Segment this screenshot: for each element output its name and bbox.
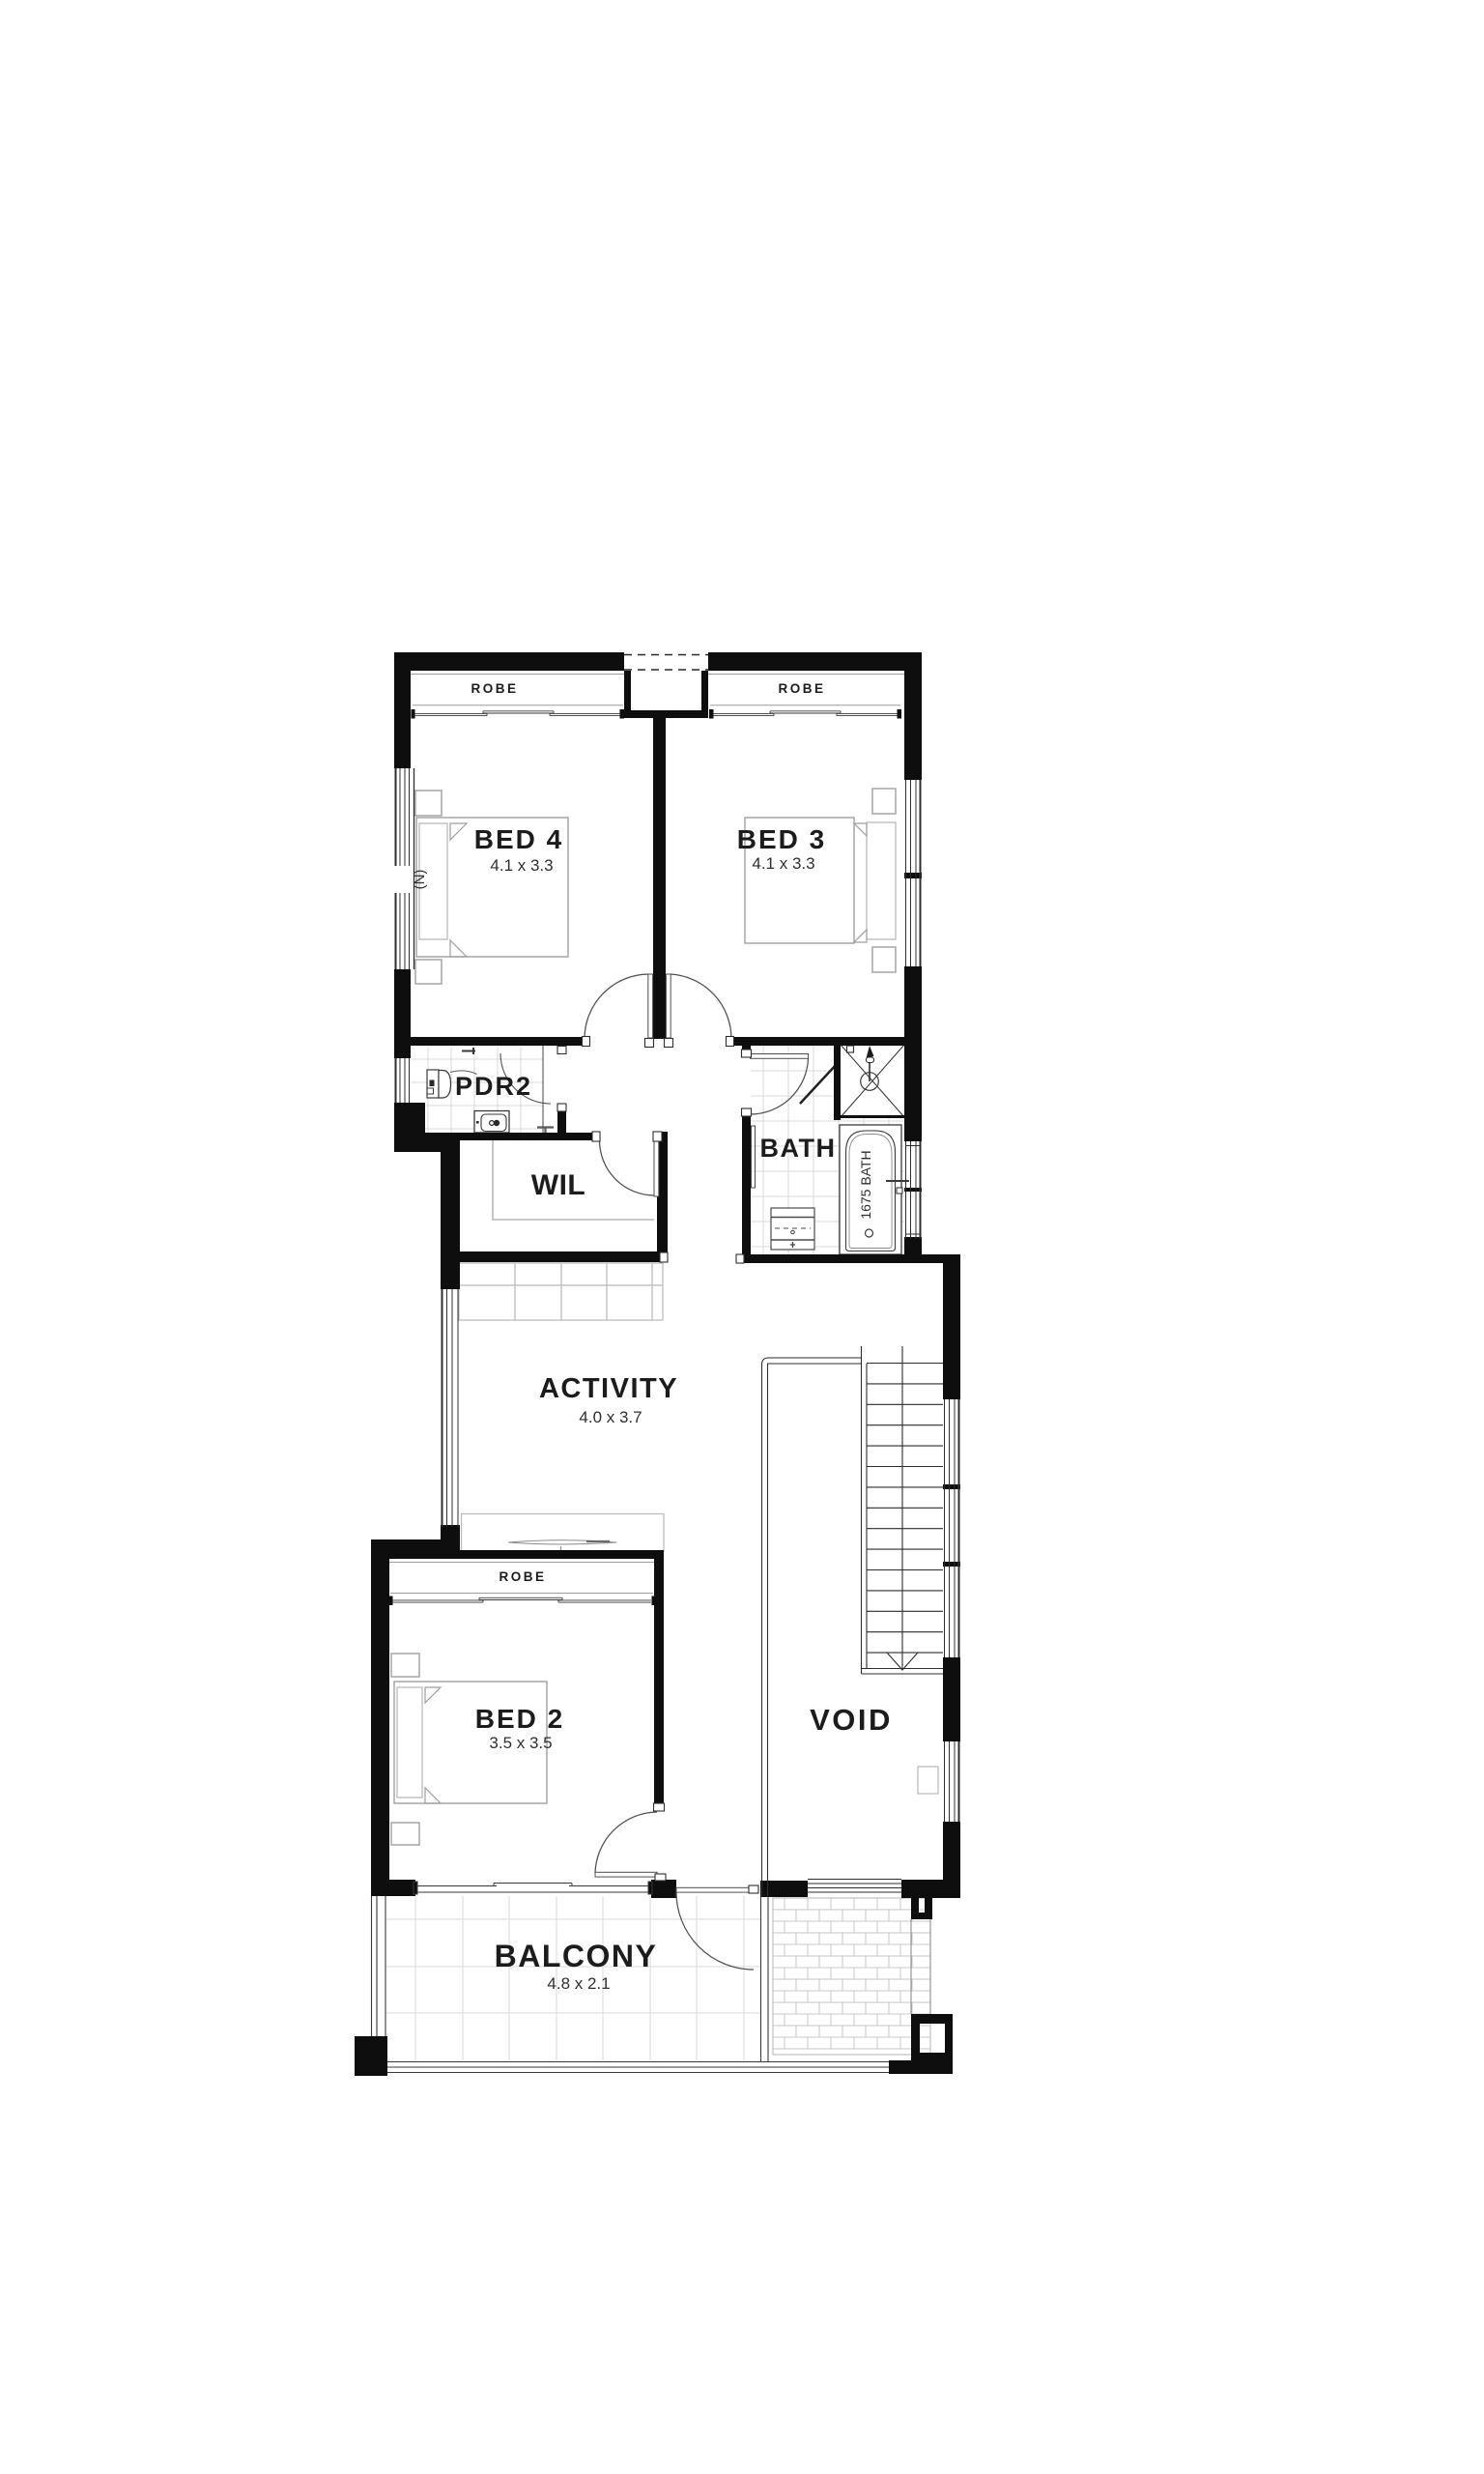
svg-text:ROBE: ROBE xyxy=(499,1569,546,1584)
svg-text:3.5 x 3.5: 3.5 x 3.5 xyxy=(489,1734,552,1752)
svg-text:4.8 x 2.1: 4.8 x 2.1 xyxy=(547,1974,610,1993)
svg-text:BED 4: BED 4 xyxy=(474,824,563,854)
svg-text:VOID: VOID xyxy=(810,1703,893,1737)
svg-text:PDR2: PDR2 xyxy=(455,1072,532,1101)
svg-text:4.1 x 3.3: 4.1 x 3.3 xyxy=(752,854,814,873)
svg-text:ROBE: ROBE xyxy=(778,681,825,696)
svg-text:ROBE: ROBE xyxy=(471,681,518,696)
svg-text:BED 2: BED 2 xyxy=(475,1704,564,1734)
svg-text:4.1 x 3.3: 4.1 x 3.3 xyxy=(490,856,553,875)
svg-text:BED 3: BED 3 xyxy=(737,824,826,854)
svg-text:(N): (N) xyxy=(412,870,428,890)
svg-text:BALCONY: BALCONY xyxy=(495,1939,658,1973)
svg-text:1675 BATH: 1675 BATH xyxy=(858,1150,873,1219)
svg-text:4.0 x 3.7: 4.0 x 3.7 xyxy=(579,1408,642,1426)
svg-text:ACTIVITY: ACTIVITY xyxy=(539,1373,678,1404)
svg-text:WIL: WIL xyxy=(531,1169,585,1201)
svg-text:BATH: BATH xyxy=(760,1134,837,1163)
